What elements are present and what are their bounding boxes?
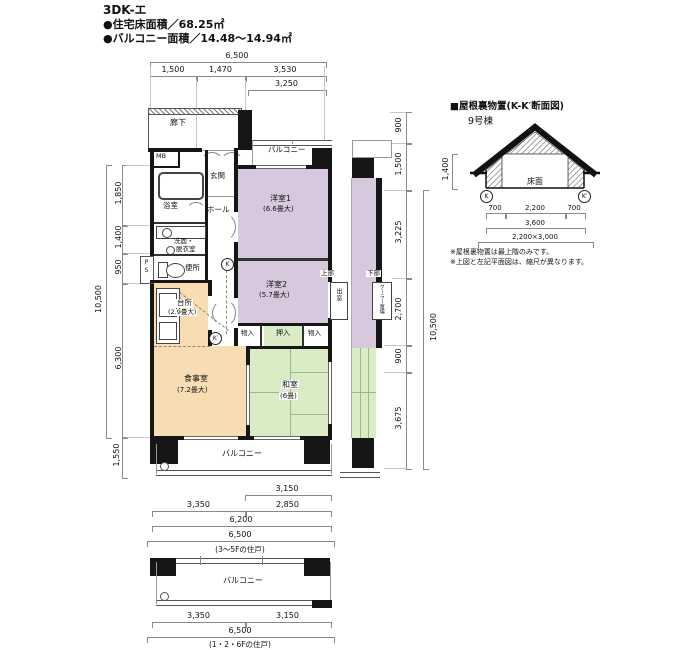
balcony-edge-line — [330, 562, 331, 604]
dim-label: 3,150 — [245, 611, 330, 620]
fragment-cooler-label: クーラー置場 — [378, 284, 384, 316]
dim-line — [406, 143, 412, 192]
extension-line — [126, 437, 150, 438]
lower-balcony-label: バルコニー — [223, 576, 263, 585]
dim-line — [122, 283, 128, 439]
extension-line — [384, 345, 406, 346]
lower-plan-caption: (1・2・6Fの住戸) — [147, 641, 333, 650]
dim-label: 3,600 — [510, 219, 560, 227]
bay-window-label: 出窓 — [334, 288, 341, 314]
fragment-washitsu-floor — [352, 348, 376, 438]
balcony-rail — [156, 600, 332, 606]
window — [328, 362, 332, 424]
dim-label: 6,200 — [152, 515, 330, 524]
extension-line — [384, 190, 406, 191]
balcony-rail-tick — [292, 140, 293, 144]
rail-tick — [200, 556, 201, 565]
balcony-edge-line — [252, 140, 253, 166]
wall-segment — [234, 328, 238, 348]
wall-segment — [150, 152, 154, 258]
balcony-edge-line — [156, 444, 157, 474]
dim-line — [406, 112, 412, 145]
extension-line — [384, 372, 406, 373]
wall-segment — [154, 254, 205, 256]
dim-line — [122, 253, 128, 285]
storage-left-label: 物入 — [241, 330, 254, 337]
window — [184, 436, 238, 440]
wall-segment — [302, 326, 304, 346]
window — [254, 436, 300, 440]
wall-segment — [150, 166, 180, 168]
wall-segment — [154, 222, 205, 224]
fragment-lower-label: 下部 — [366, 270, 381, 277]
section-mark-k: K — [480, 190, 493, 203]
wall-segment — [376, 318, 382, 348]
section-title: ■屋根裏物置(K-K′断面図) — [450, 102, 564, 113]
wall-segment — [205, 150, 208, 283]
dim-line — [406, 278, 412, 347]
entrance-step-line — [208, 196, 235, 197]
washitsu-size-label: (6畳) — [279, 392, 298, 400]
dim-line — [486, 213, 507, 219]
door-arc — [206, 298, 236, 328]
wall-segment — [376, 178, 382, 282]
tatami-line — [290, 372, 328, 373]
dim-label: 6,500 — [152, 51, 322, 60]
extension-line — [126, 225, 150, 226]
dim-line — [565, 213, 586, 219]
extension-line — [390, 143, 406, 144]
bathroom-label: 浴室 — [163, 202, 178, 211]
extension-line — [390, 112, 406, 113]
floor-area-text: ●住宅床面積／68.25㎡ — [103, 19, 224, 32]
section-cut-line — [226, 270, 227, 334]
kitchen-label: 台所 — [176, 299, 193, 308]
corridor-edge-line — [148, 108, 149, 150]
entrance-label: 玄関 — [210, 172, 225, 181]
wall-segment — [238, 110, 252, 150]
wall-segment — [238, 436, 254, 440]
dim-line — [106, 165, 112, 439]
section-note-2: ※上図と左記平面図は、縮尺が異なります。 — [450, 258, 588, 266]
wall-segment — [328, 349, 332, 362]
dim-line — [196, 76, 247, 82]
dim-label: 3,150 — [247, 484, 327, 493]
bay-upper-label: 上部 — [320, 270, 335, 277]
section-mark-k-prime: K′ — [578, 190, 591, 203]
door-arc — [206, 212, 236, 242]
wall-segment — [178, 148, 180, 168]
dim-label: 6,500 — [147, 626, 333, 635]
balcony-edge-line — [156, 562, 157, 604]
floorplan-sheet: 3DK-エ ●住宅床面積／68.25㎡ ●バルコニー面積／14.48～14.94… — [0, 0, 700, 650]
extension-line — [324, 66, 325, 140]
bedroom1-floor — [238, 169, 328, 258]
tatami-line — [352, 392, 376, 393]
balcony-bottom-label: バルコニー — [222, 449, 262, 458]
drain-icon — [160, 462, 169, 471]
fragment-balcony-edge — [352, 140, 392, 158]
extension-line — [126, 253, 150, 254]
door-arc — [186, 202, 206, 222]
section-mark-k-prime: K′ — [209, 332, 222, 345]
bathtub-icon — [158, 172, 204, 200]
tatami-line — [290, 414, 328, 415]
dim-label: 1,500 — [395, 147, 403, 181]
pipe-space-label: PS — [142, 259, 149, 281]
attic-floor-label: 床面 — [527, 176, 543, 186]
dim-label: 3,350 — [152, 500, 245, 509]
drain-icon — [160, 592, 169, 601]
dining-size-label: (7.2畳大) — [177, 386, 208, 394]
kitchen-size-label: (2.9畳大) — [167, 309, 197, 316]
main-plan-caption: (3～5Fの住戸) — [147, 546, 333, 555]
wall-segment — [208, 283, 212, 296]
meter-box-label: MB — [156, 153, 166, 160]
wall-segment — [352, 158, 374, 178]
fragment-bedroom-floor — [352, 178, 376, 348]
dim-label: 900 — [395, 108, 403, 142]
dim-line — [406, 372, 412, 470]
balcony-rail — [156, 470, 332, 476]
fragment-cut-line — [351, 178, 352, 438]
dining-label: 食事室 — [184, 374, 208, 383]
extension-line — [150, 66, 151, 108]
bedroom2-label: 洋室2 — [266, 280, 287, 289]
kitchen-stove-icon — [159, 322, 177, 340]
dim-line — [122, 165, 128, 227]
dim-line — [122, 437, 128, 479]
toilet-bowl-icon — [166, 263, 185, 278]
toilet-label: 便所 — [185, 264, 200, 273]
dim-label: 2,850 — [245, 500, 330, 509]
washbasin-icon — [162, 228, 172, 238]
bedroom2-size-label: (5.7畳大) — [259, 291, 290, 299]
balcony-rail — [176, 558, 304, 564]
wall-segment — [246, 349, 250, 365]
dim-label: 1,400 — [442, 152, 450, 186]
balcony-top-label: バルコニー — [268, 146, 305, 155]
extension-line — [384, 468, 406, 469]
bedroom1-label: 洋室1 — [270, 194, 291, 203]
dim-line — [406, 345, 412, 374]
rail-tick — [262, 556, 263, 565]
wall-segment — [304, 437, 330, 464]
wall-segment — [352, 438, 374, 468]
dim-label: 10,500 — [95, 282, 103, 316]
dim-line — [150, 76, 198, 82]
dim-line — [406, 190, 412, 280]
section-mark-k: K — [221, 258, 234, 271]
dim-line — [248, 90, 327, 96]
sliding-door-line — [246, 365, 247, 425]
oshiire-label: 押入 — [276, 329, 290, 337]
window — [256, 165, 306, 169]
balcony-rail — [340, 472, 380, 478]
storage-right-label: 物入 — [308, 330, 321, 337]
dim-label: 2,200 — [510, 204, 560, 212]
dim-label: 700 — [561, 204, 587, 212]
extension-line — [392, 278, 406, 279]
extension-line — [126, 165, 150, 166]
wall-segment — [260, 326, 262, 346]
wall-segment — [304, 558, 330, 576]
dim-label: 3,675 — [395, 401, 403, 435]
dim-label: 1,550 — [113, 438, 121, 472]
bedroom1-size-label: (6.6畳大) — [263, 205, 294, 213]
tatami-line — [368, 348, 369, 438]
plan-type-title: 3DK-エ — [103, 4, 147, 18]
attic-section-drawing: 床面 — [440, 122, 630, 194]
washroom-label-line2: 脱衣室 — [176, 246, 196, 253]
balcony-area-text: ●バルコニー面積／14.48～14.94㎡ — [103, 33, 292, 46]
wall-segment — [312, 600, 332, 608]
corridor-wall-hatch — [148, 108, 242, 115]
tatami-line — [360, 348, 361, 438]
wall-segment — [328, 169, 332, 282]
dim-label: 10,500 — [430, 310, 438, 344]
dim-label: 1,470 — [196, 65, 245, 74]
corridor-label: 廊下 — [170, 118, 186, 127]
dim-label: 2,700 — [395, 292, 403, 326]
dim-label: 700 — [482, 204, 508, 212]
balcony-edge-line — [331, 444, 332, 474]
sliding-door-line — [249, 365, 250, 425]
dim-label: 6,500 — [147, 530, 333, 539]
washitsu-label: 和室 — [281, 380, 299, 389]
dim-label: 3,530 — [245, 65, 325, 74]
dim-line — [122, 225, 128, 255]
wall-segment — [246, 425, 250, 436]
section-note-1: ※屋根裏物置は最上階のみです。 — [450, 248, 553, 256]
dim-label: 3,350 — [152, 611, 245, 620]
wall-segment — [150, 437, 178, 464]
dim-label: 1,500 — [150, 65, 196, 74]
dim-label: 3,225 — [395, 215, 403, 249]
dim-line — [452, 154, 458, 190]
dim-label: 2,200×3,000 — [492, 233, 578, 241]
wall-segment — [150, 558, 176, 576]
kitchen-dining-dashed-line — [154, 346, 210, 347]
dim-label: 3,250 — [248, 79, 325, 88]
